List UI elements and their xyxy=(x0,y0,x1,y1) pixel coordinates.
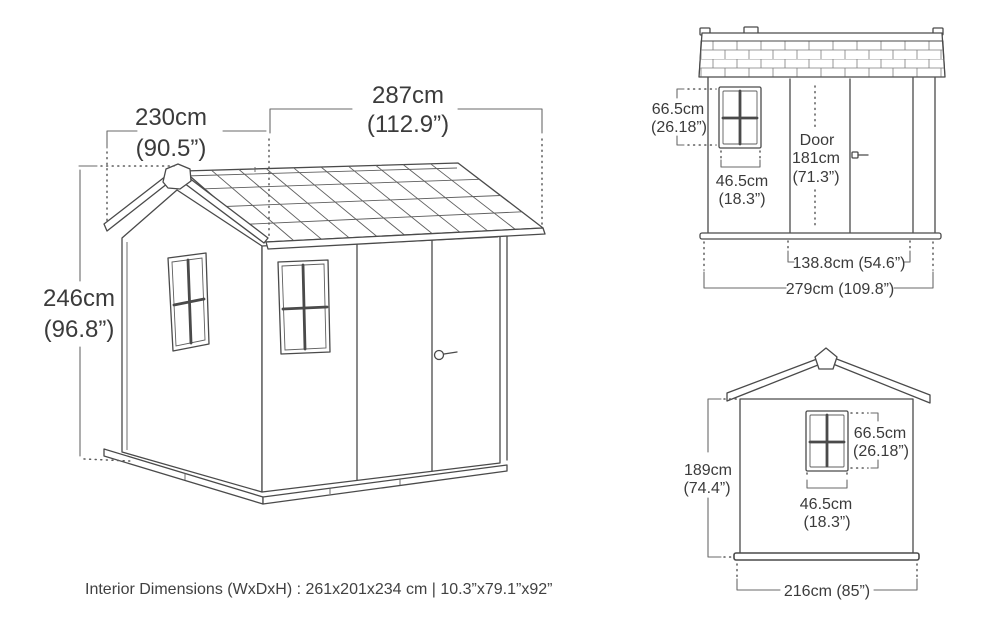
gable-dim-wall-height: 189cm (74.4”) xyxy=(683,399,737,557)
dim-width-cm-label: 287cm xyxy=(372,82,444,109)
side-window-height-inch: (26.18”) xyxy=(651,119,707,136)
dim-height-inch-label: (96.8”) xyxy=(44,316,115,343)
side-base-plinth xyxy=(700,233,941,239)
dim-depth-inch-label: (90.5”) xyxy=(136,135,207,162)
shed-3d-side-window xyxy=(278,260,330,354)
gable-roof xyxy=(727,348,930,403)
gable-window-width-inch: (18.3”) xyxy=(803,514,850,531)
side-dim-window-height: 66.5cm (26.18”) xyxy=(651,89,716,145)
side-roof-band xyxy=(699,27,945,77)
door-opening-width-label: 138.8cm (54.6”) xyxy=(793,255,906,272)
side-window-height-cm: 66.5cm xyxy=(652,101,704,118)
door-word-label: Door xyxy=(800,132,835,149)
side-dim-window-width: 46.5cm (18.3”) xyxy=(716,151,768,208)
door-side-elevation: 66.5cm (26.18”) 46.5cm (18.3”) Door 181c… xyxy=(651,27,945,298)
gable-dim-overall-width: 216cm (85”) xyxy=(737,564,917,600)
gable-window-height-cm: 66.5cm xyxy=(854,425,906,442)
gable-front-elevation: 66.5cm (26.18”) 46.5cm (18.3”) 189cm (74… xyxy=(683,348,930,600)
side-dim-door-opening: 138.8cm (54.6”) xyxy=(788,241,910,272)
gable-peak-finial xyxy=(815,348,837,369)
gable-overall-width-label: 216cm (85”) xyxy=(784,583,870,600)
side-window-width-cm: 46.5cm xyxy=(716,173,768,190)
shed-3d-gable-window xyxy=(168,253,209,351)
side-door-handle-icon xyxy=(852,152,858,158)
side-window-width-inch: (18.3”) xyxy=(718,191,765,208)
side-window xyxy=(719,87,761,148)
side-door-label: Door 181cm (71.3”) xyxy=(792,132,840,186)
interior-dimensions-text: Interior Dimensions (WxDxH) : 261x201x23… xyxy=(85,581,552,598)
diagram-canvas: 287cm (112.9”) 230cm (90.5”) 246cm (96.8… xyxy=(0,0,1000,631)
gable-wall-height-cm: 189cm xyxy=(684,462,732,479)
gable-wall-height-inch: (74.4”) xyxy=(683,480,730,497)
gable-dim-window-width: 46.5cm (18.3”) xyxy=(800,473,852,531)
gable-base-plinth xyxy=(734,553,919,560)
shed-3d-view: 287cm (112.9”) 230cm (90.5”) 246cm (96.8… xyxy=(43,82,545,504)
side-overall-width-label: 279cm (109.8”) xyxy=(786,281,895,298)
door-height-inch: (71.3”) xyxy=(792,169,839,186)
gable-window-width-cm: 46.5cm xyxy=(800,496,852,513)
gable-dim-window-height: 66.5cm (26.18”) xyxy=(851,413,909,468)
gable-window xyxy=(806,411,848,471)
door-height-cm: 181cm xyxy=(792,150,840,167)
dim-depth-cm-label: 230cm xyxy=(135,104,207,131)
shed-dimensions-diagram: 287cm (112.9”) 230cm (90.5”) 246cm (96.8… xyxy=(0,0,1000,631)
gable-window-height-inch: (26.18”) xyxy=(853,443,909,460)
dim-width-inch-label: (112.9”) xyxy=(367,111,449,138)
dim-height-cm-label: 246cm xyxy=(43,285,115,312)
